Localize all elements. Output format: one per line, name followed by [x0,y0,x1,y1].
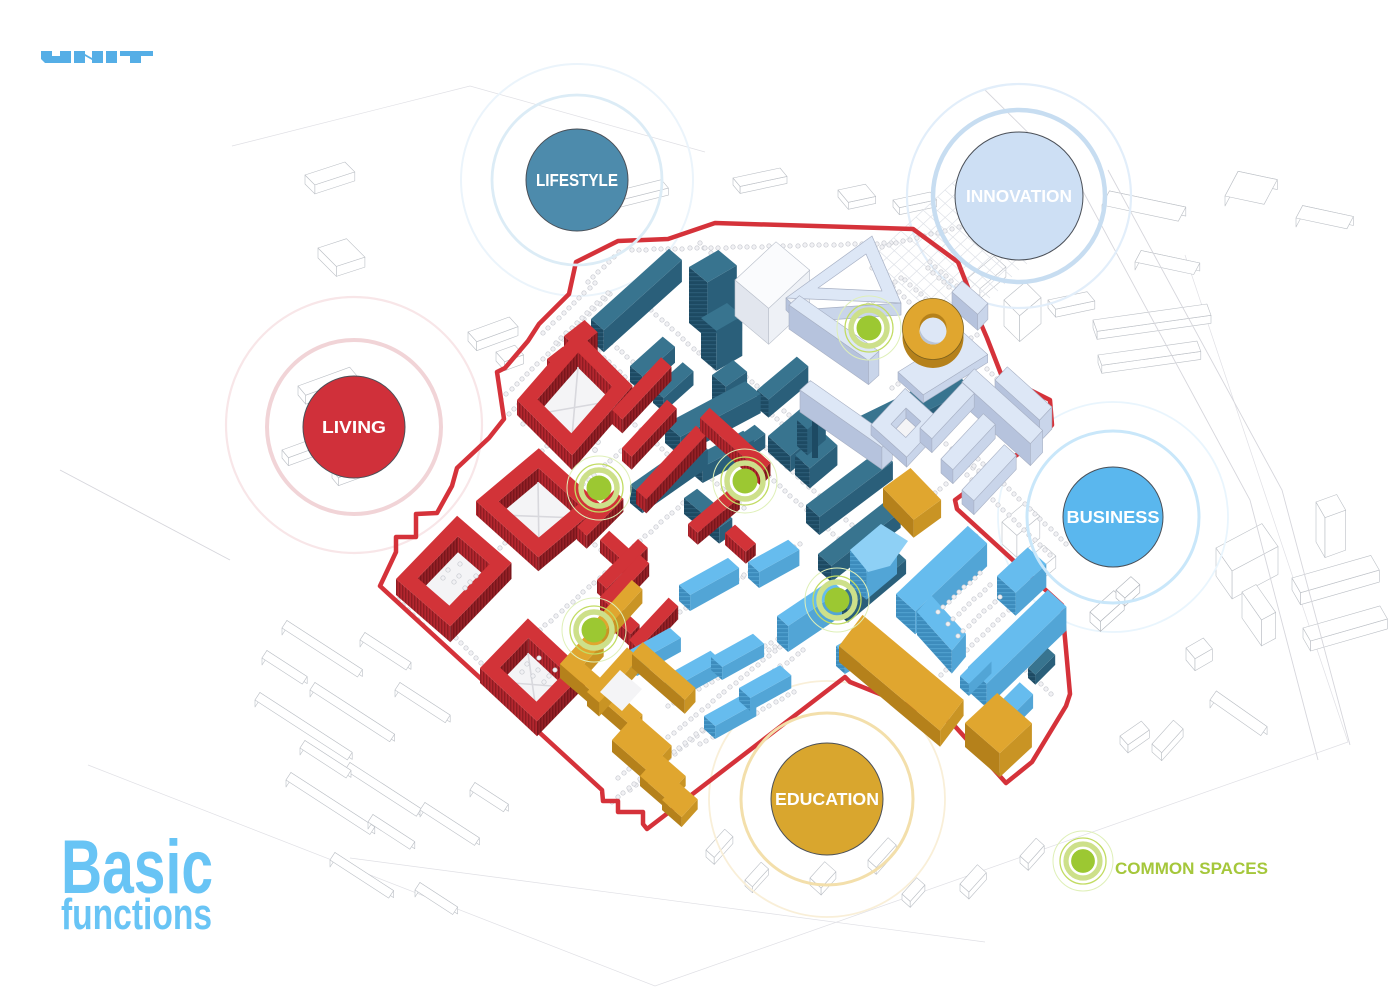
svg-text:BUSINESS: BUSINESS [1067,507,1160,527]
svg-text:INNOVATION: INNOVATION [966,186,1072,206]
svg-text:EDUCATION: EDUCATION [775,789,879,809]
svg-text:LIFESTYLE: LIFESTYLE [536,170,618,190]
svg-text:COMMON SPACES: COMMON SPACES [1115,859,1268,878]
svg-text:functions: functions [61,890,212,939]
svg-text:LIVING: LIVING [322,417,386,437]
